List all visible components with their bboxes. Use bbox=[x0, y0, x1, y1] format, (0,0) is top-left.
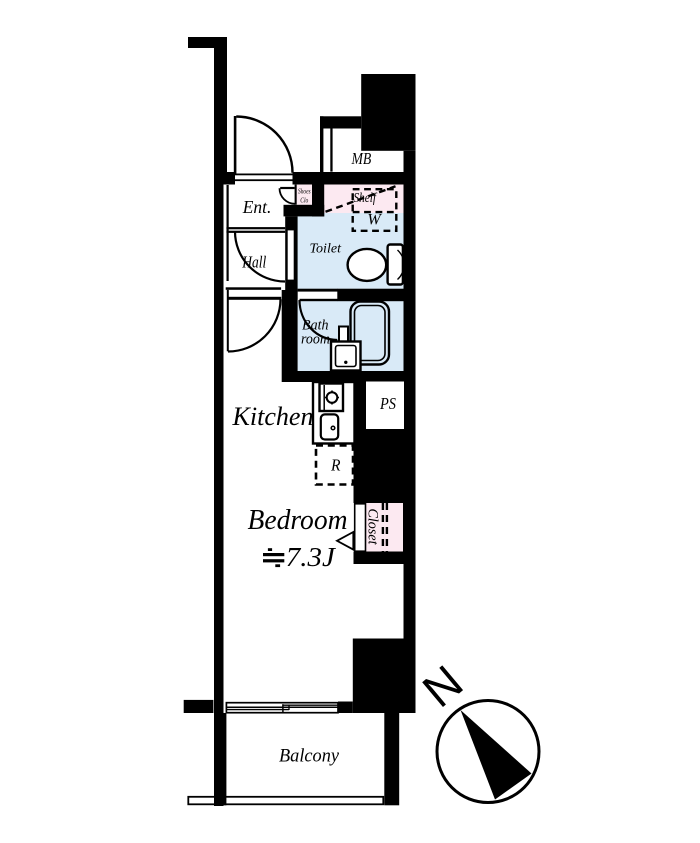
svg-text:Kitchen: Kitchen bbox=[231, 402, 313, 431]
svg-text:Balcony: Balcony bbox=[279, 746, 340, 767]
svg-text:Toilet: Toilet bbox=[310, 242, 343, 257]
svg-text:7.3J: 7.3J bbox=[286, 541, 337, 572]
svg-text:Ent.: Ent. bbox=[242, 197, 271, 217]
svg-text:Hall: Hall bbox=[242, 253, 267, 272]
svg-text:W: W bbox=[367, 212, 382, 229]
svg-text:R: R bbox=[330, 456, 341, 475]
svg-text:Clo: Clo bbox=[300, 195, 308, 204]
svg-text:MB: MB bbox=[351, 149, 372, 168]
svg-text:PS: PS bbox=[379, 394, 396, 413]
svg-text:Closet: Closet bbox=[365, 509, 381, 546]
svg-text:Shoes: Shoes bbox=[298, 187, 311, 196]
svg-text:Shelf: Shelf bbox=[354, 191, 378, 206]
svg-text:Bedroom: Bedroom bbox=[248, 505, 348, 536]
svg-text:room: room bbox=[301, 331, 330, 347]
